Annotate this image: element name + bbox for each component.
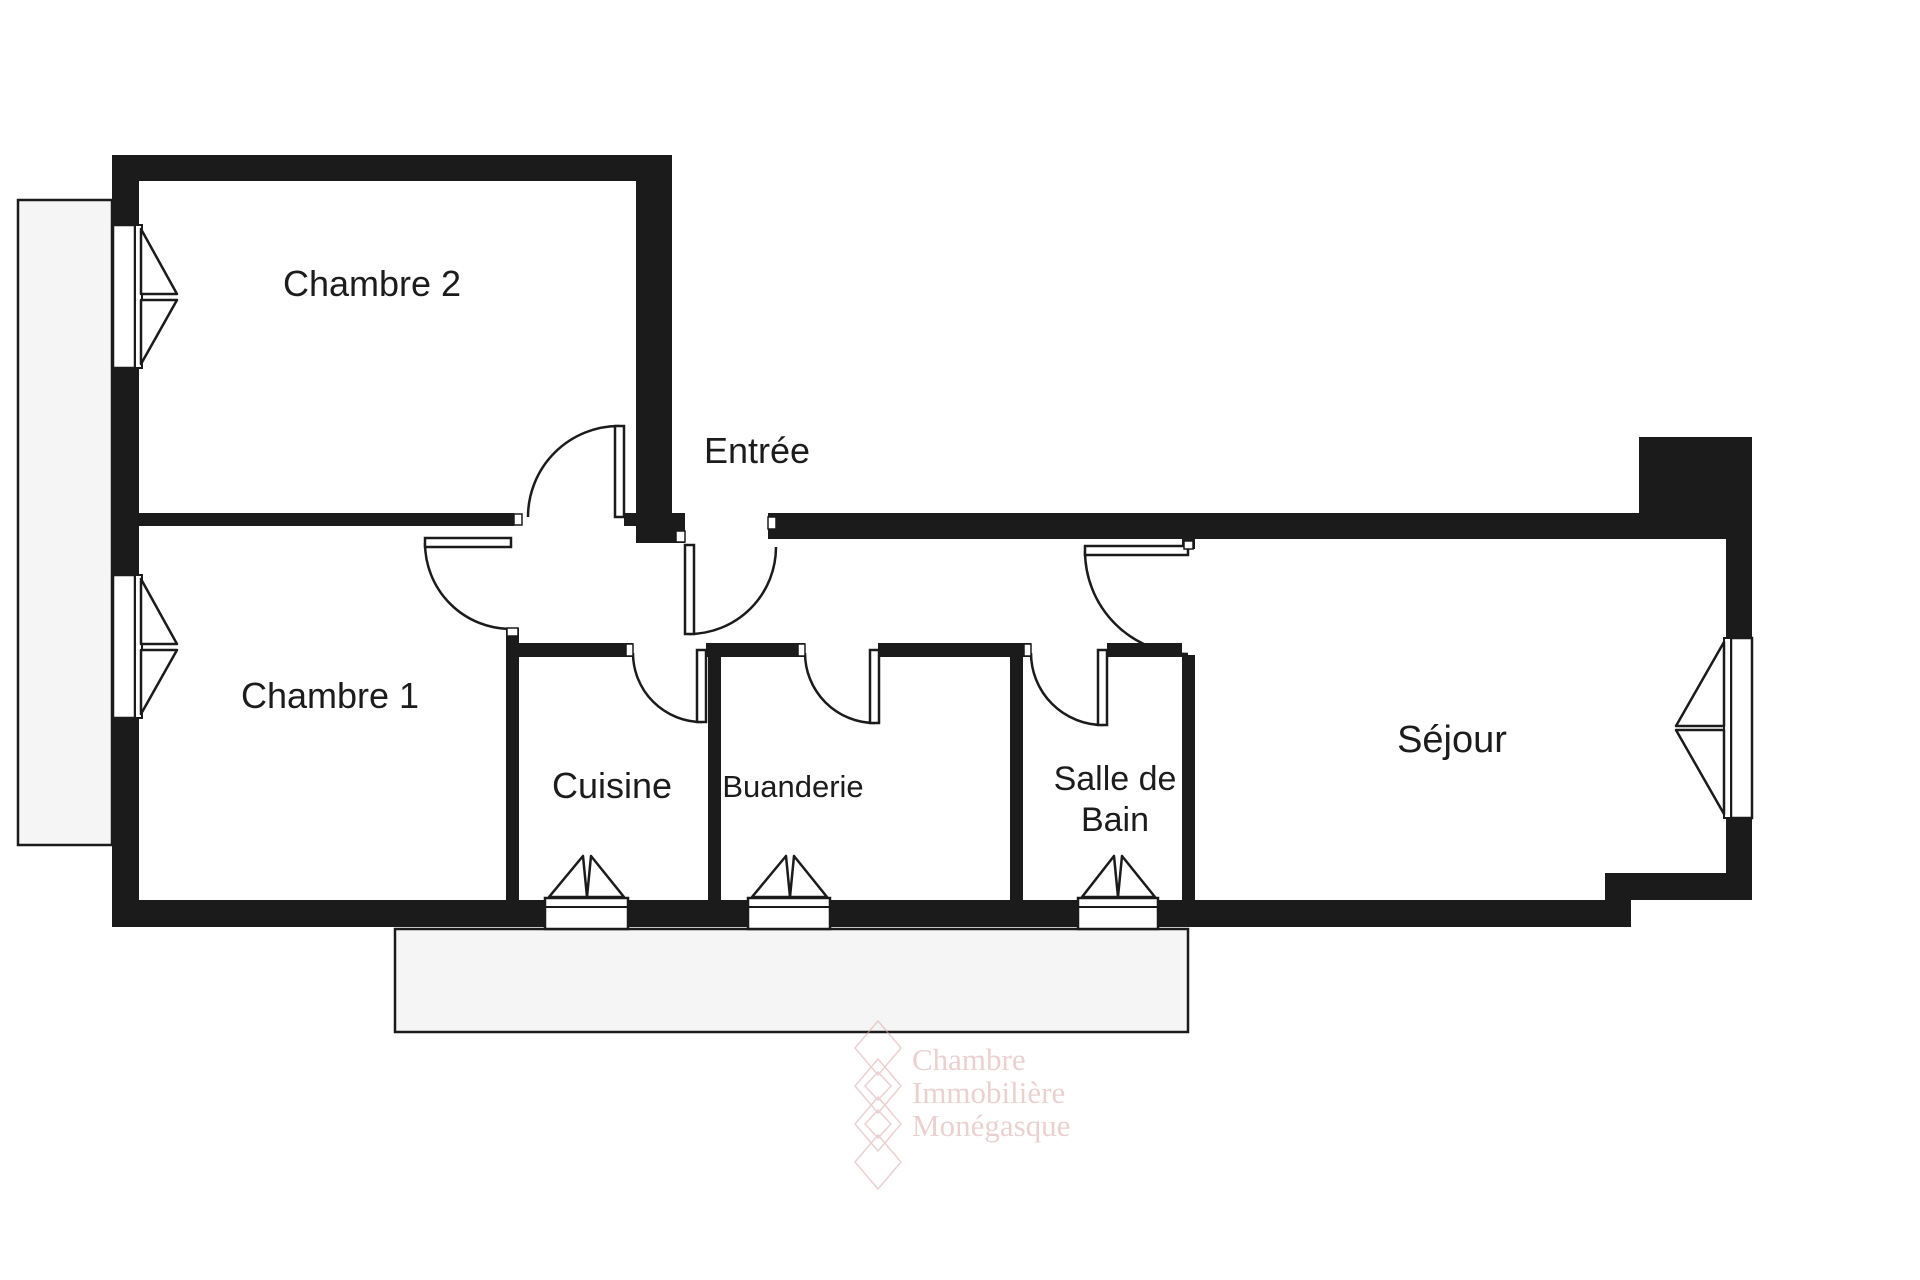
wall-corridor-south-2 [706,643,805,657]
label-buanderie: Buanderie [722,769,863,804]
windows [113,225,1752,929]
entree-front-door-icon [685,545,776,634]
label-chambre-2: Chambre 2 [283,263,461,304]
buanderie-window-icon [748,856,830,929]
wall-divider-ch2-ch1 [139,513,514,526]
wall-ch1-cuisine [506,628,519,900]
label-chambre-1: Chambre 1 [241,675,419,716]
left-balcony [18,200,112,845]
floor-plan-drawing: Chambre 2 Entrée Chambre 1 Cuisine Buand… [0,0,1920,1280]
wall-bottom-3 [830,900,1078,927]
wall-corridor-south-1 [512,643,633,657]
watermark-line-3: Monégasque [912,1108,1070,1143]
wall-ne-step-block [1639,437,1752,539]
wall-cuisine-buanderie [708,657,721,900]
wall-corridor-south-3 [878,643,1031,657]
watermark-logo-icon [855,1021,901,1189]
label-salle-de-bain-line1: Salle de [1054,760,1177,798]
cuisine-window-icon [545,856,628,929]
wall-entree-west [636,181,672,543]
wall-left-2 [112,368,139,575]
wall-bottom-1 [112,900,545,927]
wall-bottom-4 [1158,900,1631,927]
buanderie-door-icon [805,650,879,723]
label-entree: Entrée [704,430,810,471]
salle-de-bain-window-icon [1078,856,1158,929]
label-sejour: Séjour [1397,719,1507,761]
sejour-door-icon [1085,546,1188,654]
wall-left-1 [112,181,139,225]
wall-top [112,155,672,181]
wall-bottom-2 [628,900,748,927]
chambre1-door-icon [425,538,511,629]
wall-buanderie-sdb [1010,657,1023,900]
room-labels: Chambre 2 Entrée Chambre 1 Cuisine Buand… [241,263,1507,839]
watermark-line-2: Immobilière [912,1075,1065,1110]
label-cuisine: Cuisine [552,765,672,806]
wall-divider-ch2-stub [624,513,636,526]
chambre2-window-icon [113,225,177,368]
wall-north-right-section [768,513,1639,539]
wall-right-upper [1726,539,1752,638]
chambre2-door-icon [528,426,624,517]
sejour-window-icon [1676,638,1752,818]
chambre1-window-icon [113,575,177,718]
floor-plan-page: Chambre 2 Entrée Chambre 1 Cuisine Buand… [0,0,1920,1280]
wall-bottom-right [1605,873,1752,900]
cuisine-door-icon [633,650,706,722]
salle-de-bain-door-icon [1031,650,1107,725]
watermark-line-1: Chambre [912,1042,1026,1077]
bottom-terrace [395,929,1188,1032]
wall-left-3 [112,718,139,926]
wall-sdb-sejour [1182,655,1195,900]
watermark: Chambre Immobilière Monégasque [855,1021,1070,1189]
label-salle-de-bain-line2: Bain [1081,801,1149,839]
